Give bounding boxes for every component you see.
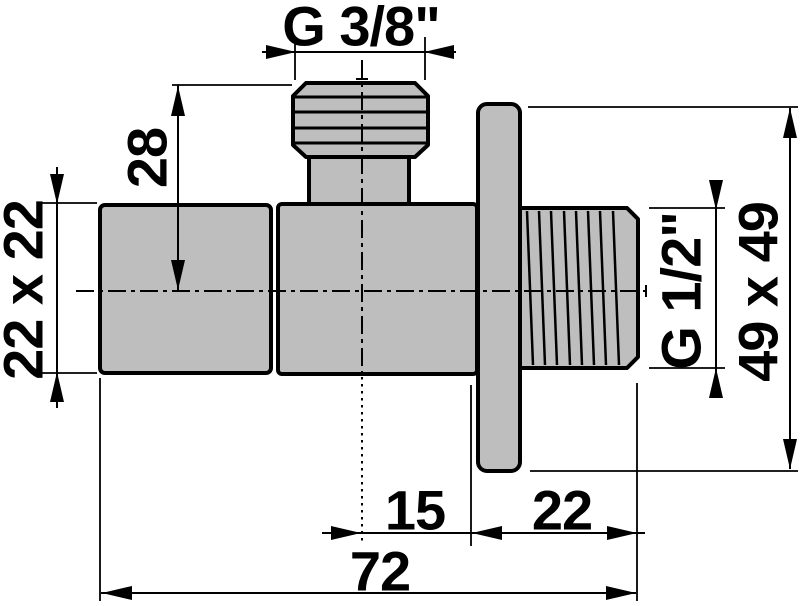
- dim-15-arrow-right: [472, 526, 502, 540]
- knob-neck: [309, 157, 409, 207]
- knob-head: [293, 83, 428, 157]
- body-left-block: [100, 205, 271, 373]
- dim-72-arrow-left: [102, 586, 132, 600]
- label-thread-top: G 3/8": [282, 0, 440, 58]
- dim-g12-arrow-bottom: [709, 368, 723, 398]
- body-center-block: [278, 204, 477, 374]
- label-thread-side: G 1/2": [650, 212, 713, 370]
- dim-15-arrow-left: [331, 526, 361, 540]
- label-dim-15: 15: [385, 479, 445, 542]
- dimension-g38: G 3/8": [262, 0, 456, 80]
- dimension-g12: G 1/2": [649, 180, 725, 398]
- dim-49x49-arrow-top: [783, 108, 797, 138]
- label-dim-72: 72: [350, 540, 410, 603]
- label-dim-22: 22: [532, 479, 592, 542]
- label-dim-22x22: 22 x 22: [0, 200, 55, 380]
- dim-28-arrow-top: [171, 86, 185, 116]
- label-dim-28: 28: [116, 128, 179, 188]
- label-dim-49x49: 49 x 49: [727, 202, 790, 382]
- dim-72-arrow-right: [606, 586, 636, 600]
- dim-49x49-arrow-bottom: [783, 439, 797, 469]
- angle-valve-diagram: G 3/8" 28 22 x 22 G 1/2" 49 x 49: [0, 0, 800, 606]
- technical-drawing-canvas: G 3/8" 28 22 x 22 G 1/2" 49 x 49: [0, 0, 800, 606]
- dim-22x22-arrow-top: [50, 174, 64, 204]
- dim-g12-arrow-top: [709, 180, 723, 210]
- dimension-22x22: 22 x 22: [0, 167, 97, 408]
- dim-22-arrow-right: [607, 526, 637, 540]
- wall-flange-plate: [478, 104, 520, 471]
